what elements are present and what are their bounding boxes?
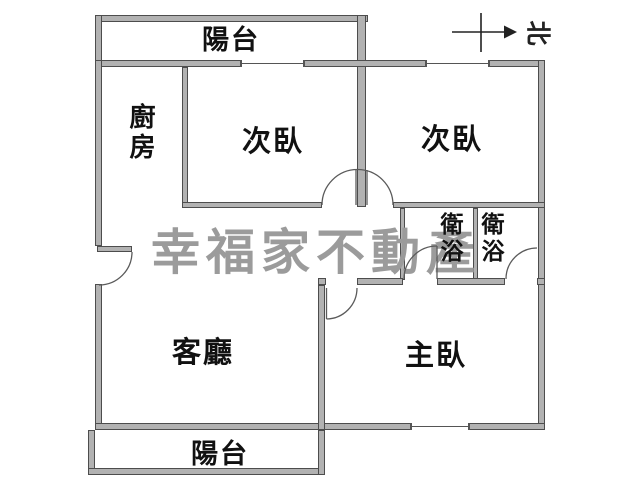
bedroom-doors-arc [322, 170, 393, 206]
label-bath-left: 衛浴 [437, 212, 460, 272]
label-kitchen: 廚房 [127, 103, 153, 173]
entry-door-arc [99, 252, 132, 285]
door-swing-overlay [0, 0, 640, 480]
compass-icon [452, 13, 517, 52]
bath-left-door-arc [404, 246, 437, 279]
label-bedroom-right: 次臥 [392, 124, 512, 156]
label-bath-right: 衛浴 [478, 212, 501, 272]
bath-right-door-arc [506, 248, 537, 279]
label-balcony-bottom: 陽台 [160, 440, 280, 470]
label-bedroom-left: 次臥 [213, 126, 333, 158]
compass-north-label: 北 [522, 20, 558, 45]
label-master: 主臥 [376, 340, 496, 372]
floor-plan: 幸福家不動產 陽台 廚房 次臥 次臥 衛浴 衛浴 客廳 主臥 [0, 0, 640, 480]
label-living: 客廳 [143, 337, 263, 369]
master-door-arc [327, 288, 358, 319]
label-balcony-top: 陽台 [171, 26, 291, 56]
